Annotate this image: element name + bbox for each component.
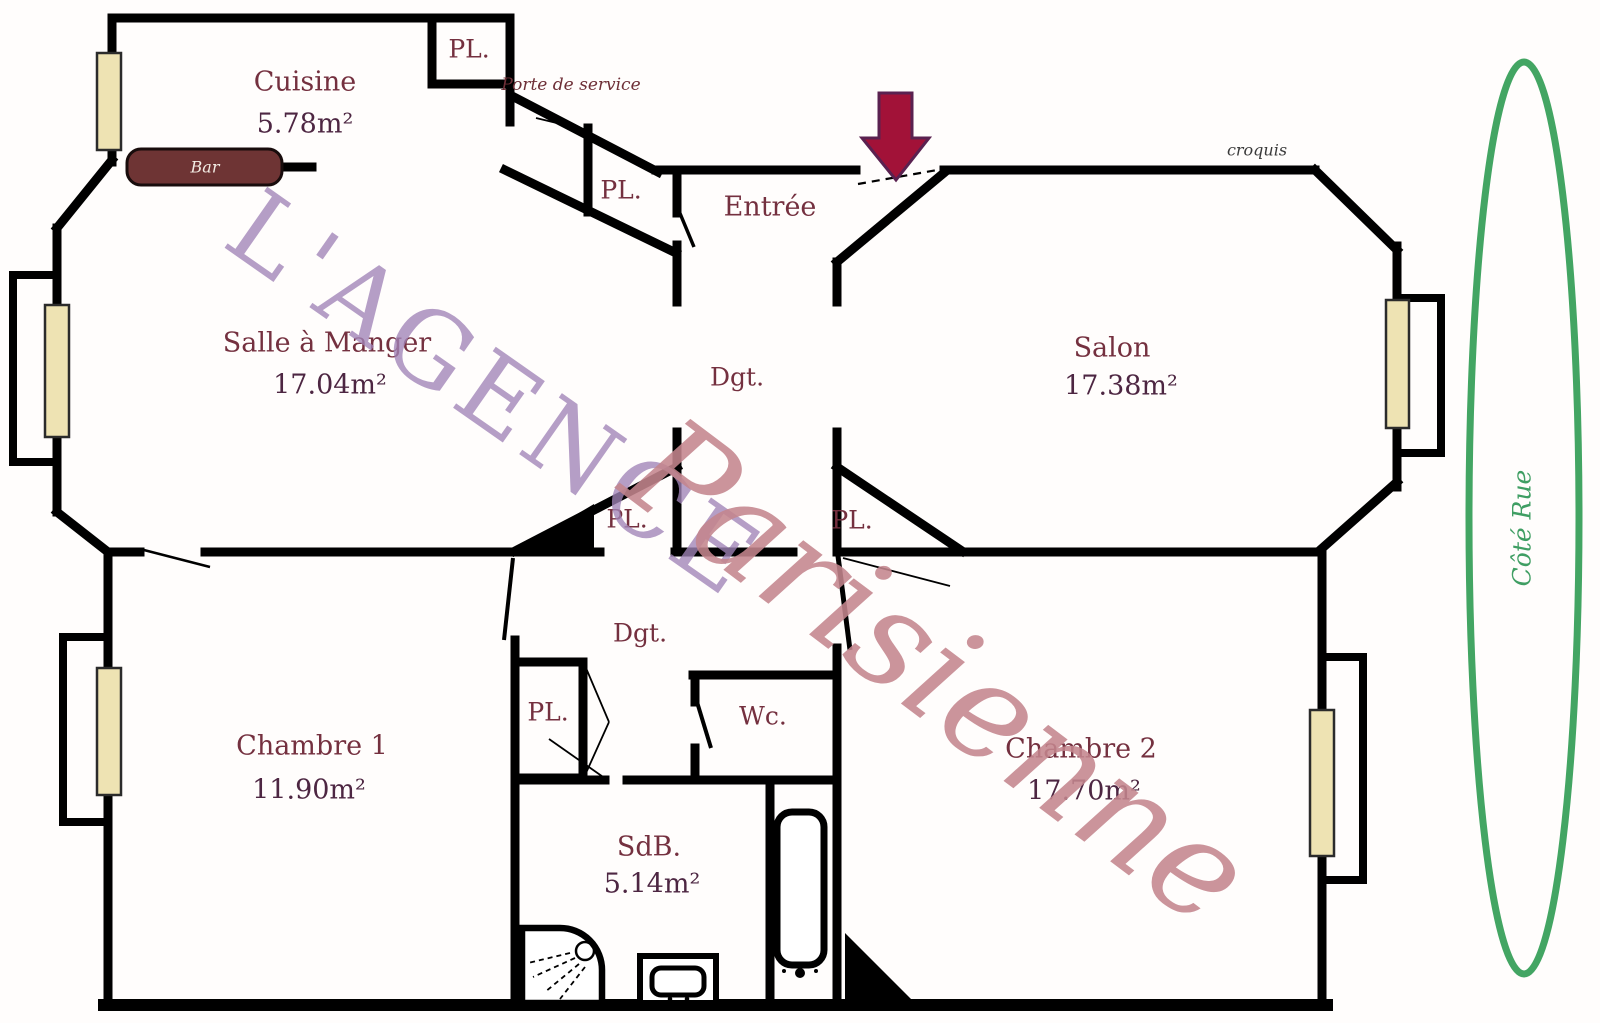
- label-closet-kitchen: PL.: [448, 35, 489, 64]
- label-cuisine: Cuisine: [254, 67, 357, 98]
- door-closet-lower-a: [586, 668, 609, 722]
- label-salon: Salon: [1074, 333, 1151, 364]
- window-chambre2: [1310, 710, 1334, 856]
- window-chambre1: [97, 668, 121, 795]
- floor-plan-drawing: Bar Côté Rue Cuisin: [0, 0, 1600, 1023]
- agency-watermark: L'AGENCE Parisienne: [206, 168, 1280, 958]
- label-entree: Entrée: [724, 192, 817, 223]
- entrance-arrow-icon: [862, 93, 929, 180]
- area-chambre1: 11.90m²: [252, 775, 366, 806]
- shower-icon: [522, 928, 602, 1003]
- label-closet-lower: PL.: [527, 698, 568, 727]
- label-dgt-lower: Dgt.: [613, 619, 667, 648]
- label-wc: Wc.: [739, 702, 787, 731]
- street-side-label: Côté Rue: [1508, 470, 1537, 587]
- door-chambre1-dgt: [504, 558, 513, 640]
- door-wc: [697, 702, 711, 748]
- area-salon: 17.38m²: [1064, 371, 1178, 402]
- sink-icon: [640, 956, 716, 1003]
- label-chambre1: Chambre 1: [236, 731, 388, 762]
- door-sdb-swing: [549, 739, 606, 779]
- window-cuisine: [97, 53, 121, 150]
- street-side-marker: Côté Rue: [1469, 62, 1579, 974]
- wall-wedge-chambre2: [845, 933, 915, 1003]
- window-salon: [1386, 300, 1409, 428]
- area-cuisine: 5.78m²: [257, 109, 354, 140]
- bar-label: Bar: [190, 158, 221, 177]
- floor-plan: Bar Côté Rue Cuisin: [0, 0, 1600, 1023]
- label-closet-service: PL.: [600, 176, 641, 205]
- label-porte-de-service: Porte de service: [500, 75, 640, 95]
- label-croquis: croquis: [1227, 141, 1287, 160]
- door-chambre1: [140, 549, 210, 567]
- label-dgt-upper: Dgt.: [710, 363, 764, 392]
- door-closet-lower-b: [586, 722, 609, 773]
- bathtub-icon: [777, 812, 824, 978]
- window-salle-a-manger: [45, 305, 69, 437]
- area-sdb: 5.14m²: [604, 869, 701, 900]
- label-sdb: SdB.: [617, 832, 681, 863]
